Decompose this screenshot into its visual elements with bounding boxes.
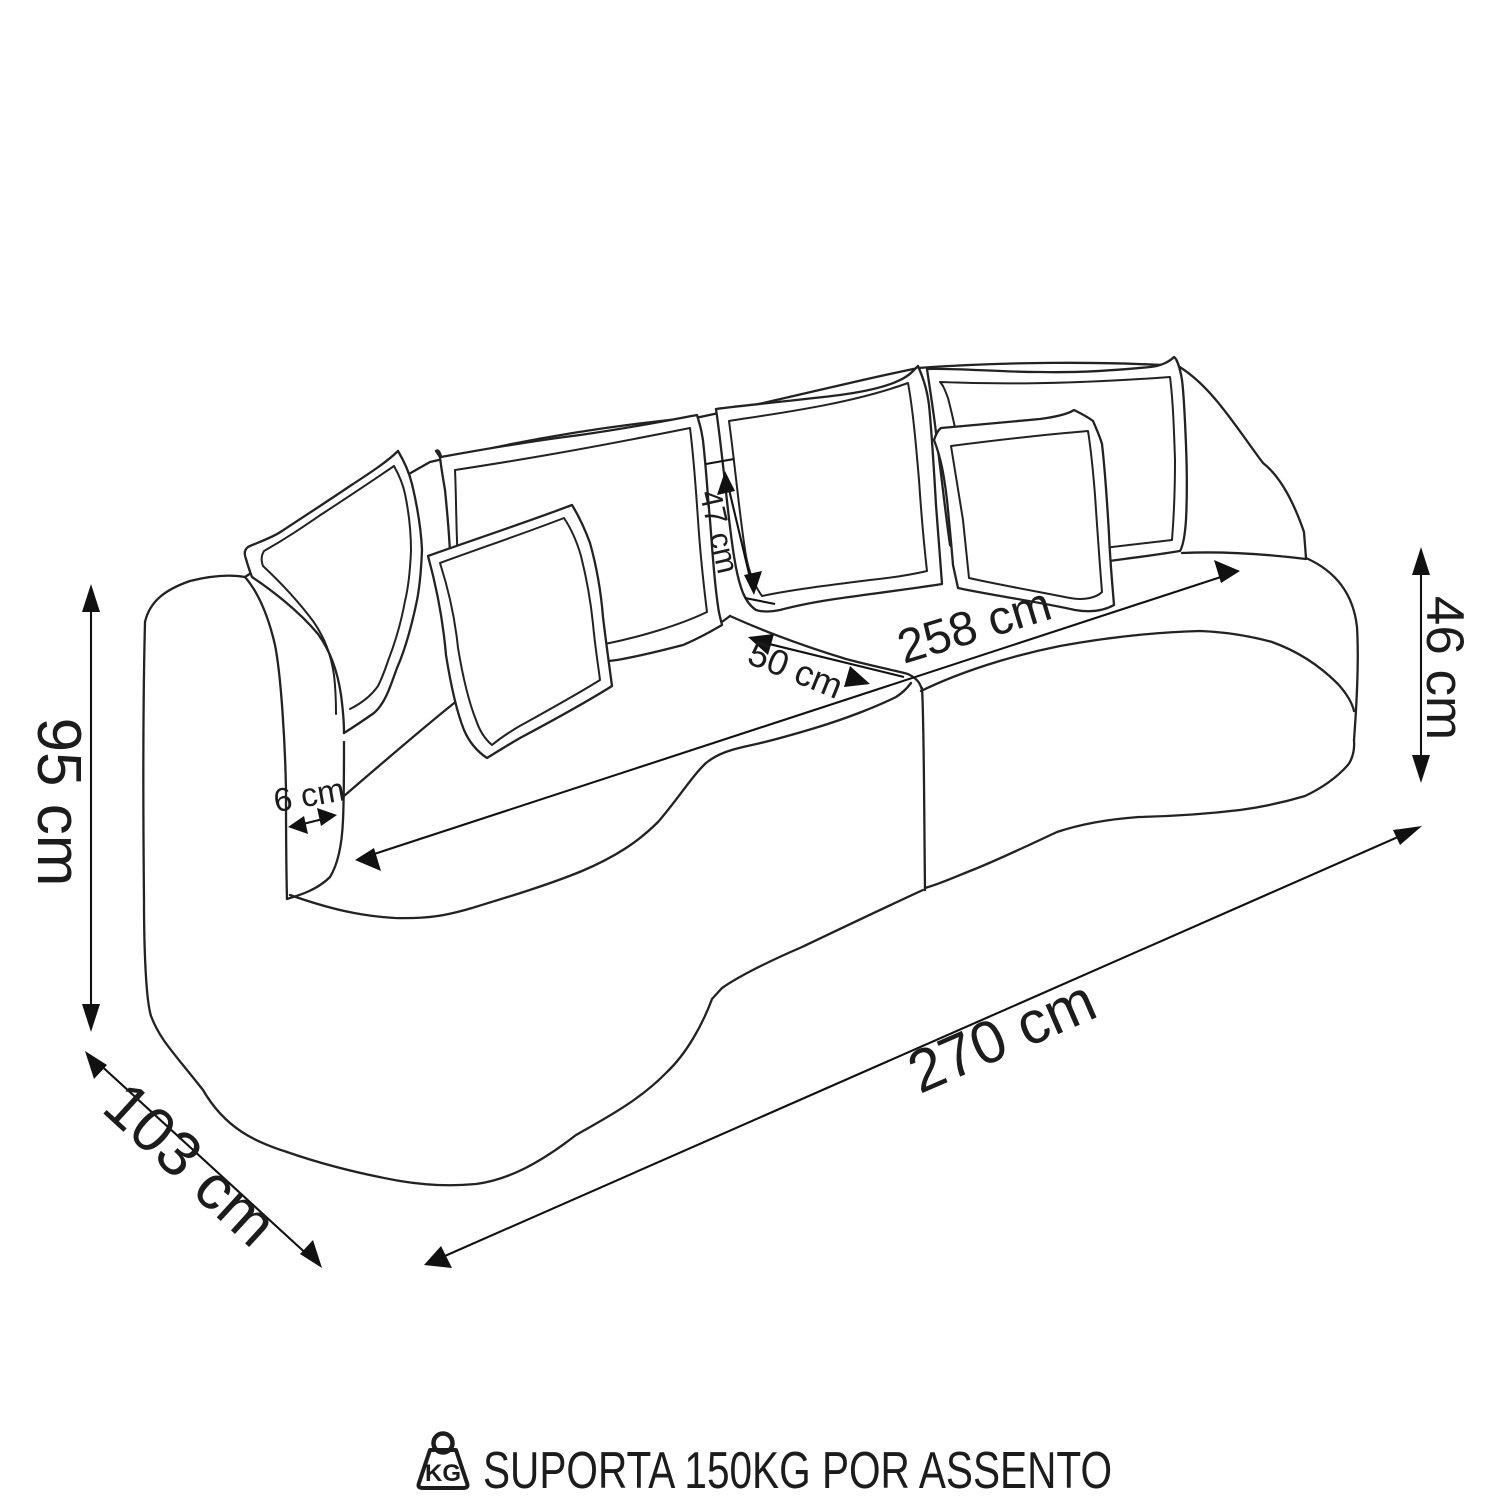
svg-text:KG: KG bbox=[425, 1460, 461, 1487]
svg-text:46 cm: 46 cm bbox=[1415, 596, 1474, 740]
svg-text:SUPORTA 150KG POR ASSENTO: SUPORTA 150KG POR ASSENTO bbox=[483, 1442, 1112, 1500]
svg-text:95 cm: 95 cm bbox=[24, 718, 93, 887]
